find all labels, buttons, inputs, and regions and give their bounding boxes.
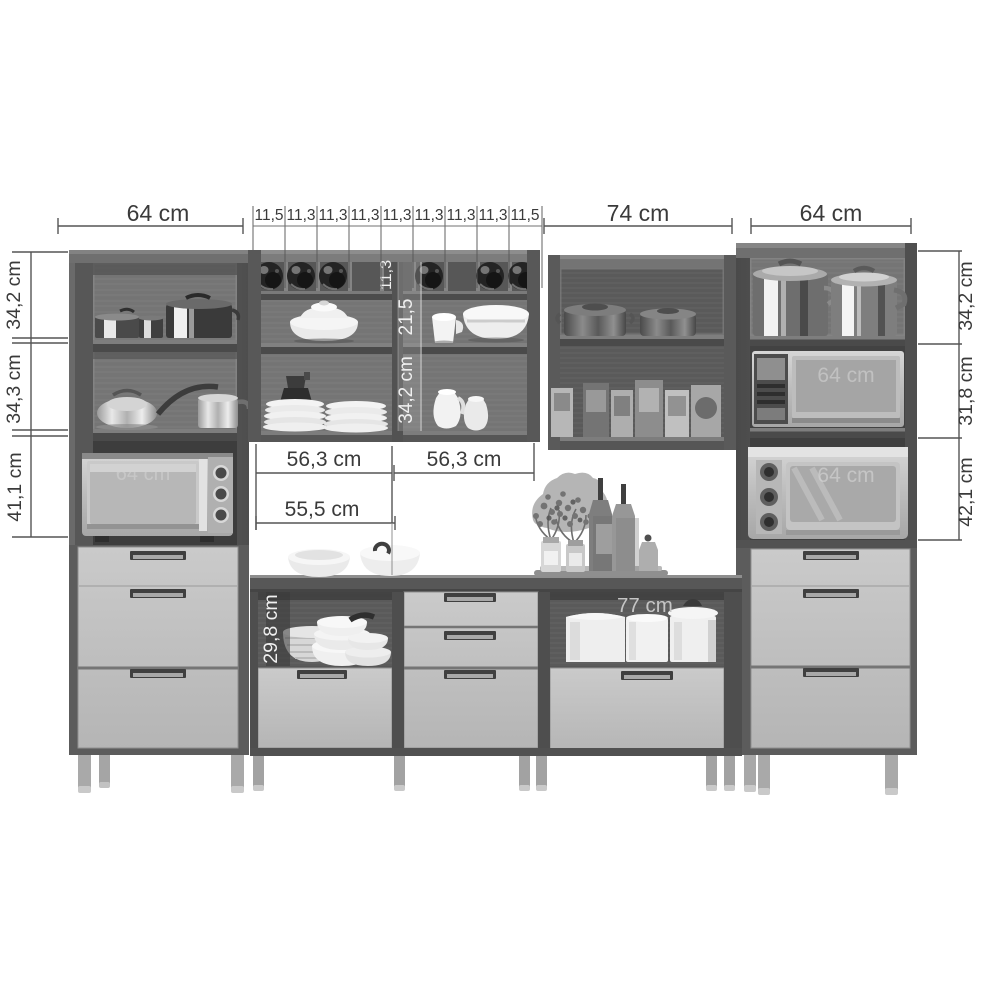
- svg-text:42,1 cm: 42,1 cm: [955, 457, 977, 526]
- svg-text:34,2 cm: 34,2 cm: [3, 260, 25, 329]
- svg-text:34,3 cm: 34,3 cm: [3, 354, 25, 423]
- svg-text:64 cm: 64 cm: [817, 364, 874, 387]
- svg-text:21,5: 21,5: [396, 299, 417, 336]
- svg-text:29,8 cm: 29,8 cm: [260, 594, 282, 663]
- svg-text:31,8 cm: 31,8 cm: [955, 356, 977, 425]
- svg-text:64 cm: 64 cm: [116, 463, 170, 485]
- svg-text:55,5 cm: 55,5 cm: [285, 498, 360, 521]
- svg-text:34,2 cm: 34,2 cm: [955, 261, 977, 330]
- svg-text:64 cm: 64 cm: [127, 200, 190, 226]
- svg-text:11,5: 11,5: [510, 207, 539, 224]
- svg-text:11,3: 11,3: [478, 207, 507, 224]
- svg-text:64 cm: 64 cm: [800, 200, 863, 226]
- svg-text:11,3: 11,3: [318, 207, 347, 224]
- svg-text:56,3 cm: 56,3 cm: [287, 448, 362, 471]
- svg-text:11,3: 11,3: [446, 207, 475, 224]
- svg-text:74 cm: 74 cm: [607, 200, 670, 226]
- svg-text:77 cm: 77 cm: [617, 594, 673, 617]
- svg-text:11,3: 11,3: [414, 207, 443, 224]
- svg-text:56,3 cm: 56,3 cm: [427, 448, 502, 471]
- svg-text:34,2 cm: 34,2 cm: [396, 356, 417, 424]
- svg-text:11,3: 11,3: [350, 207, 379, 224]
- svg-text:11,3: 11,3: [286, 207, 315, 224]
- svg-text:11,3: 11,3: [382, 207, 411, 224]
- svg-text:64 cm: 64 cm: [817, 464, 874, 487]
- svg-text:41,1 cm: 41,1 cm: [4, 452, 26, 521]
- svg-text:11,5: 11,5: [254, 207, 283, 224]
